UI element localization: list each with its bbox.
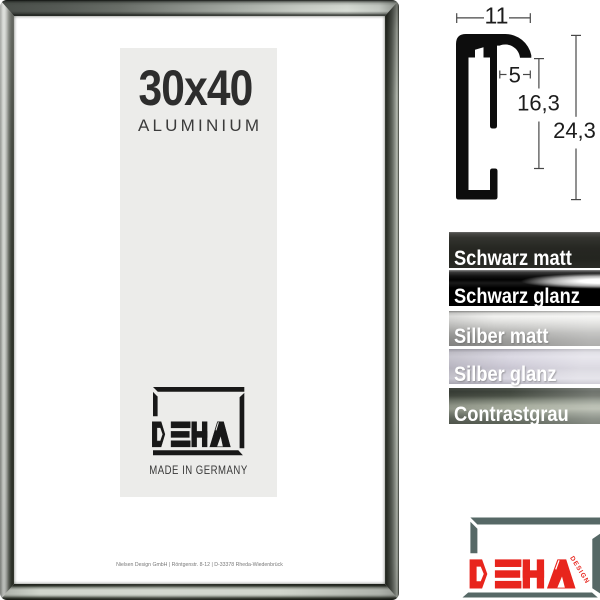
svg-text:24,3: 24,3 bbox=[553, 118, 596, 143]
svg-text:5: 5 bbox=[509, 63, 521, 88]
svg-text:11: 11 bbox=[485, 3, 509, 29]
svg-text:16,3: 16,3 bbox=[517, 91, 560, 116]
